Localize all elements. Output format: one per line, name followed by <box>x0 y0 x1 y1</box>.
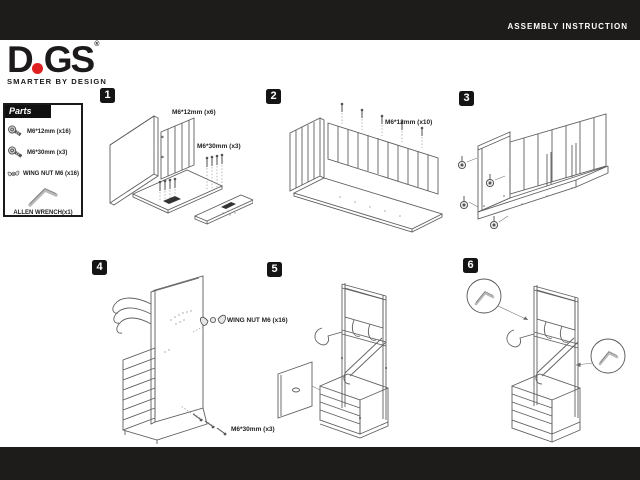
logo-letters-gs: GS <box>44 45 93 75</box>
step-1-diagram <box>103 95 253 245</box>
step-2-bolt-label: M6*12mm (x10) <box>385 119 432 126</box>
bolt-icon <box>7 145 24 160</box>
top-bar: ASSEMBLY INSTRUCTION <box>0 0 640 40</box>
part-row-wing-nut: WING NUT M6 (x16) <box>7 163 79 184</box>
step-3-number: 3 <box>459 91 474 106</box>
wing-nut-icon <box>7 167 20 180</box>
registered-mark: ® <box>94 41 99 48</box>
part-row-allen-wrench: ALLEN WRENCH(x1) <box>7 186 79 216</box>
part-row-m6-30: M6*30mm (x3) <box>7 142 79 163</box>
allen-wrench-icon <box>26 186 60 208</box>
step-4-diagram <box>95 268 265 446</box>
brand-logo: D GS ® SMARTER BY DESIGN <box>7 41 97 86</box>
logo-wordmark: D GS ® <box>7 41 97 75</box>
parts-list: Parts M6*12mm (x16) <box>3 103 83 217</box>
step-4-wing-nut-label: WING NUT M6 (x16) <box>227 317 288 324</box>
parts-items: M6*12mm (x16) M6*30mm (x3) <box>7 121 79 216</box>
step-6-diagram <box>452 266 632 446</box>
logo-red-dot-icon <box>32 63 43 74</box>
part-row-m6-12: M6*12mm (x16) <box>7 121 79 142</box>
parts-list-title: Parts <box>5 105 51 118</box>
logo-letter-d: D <box>7 45 32 75</box>
part-label: M6*12mm (x16) <box>27 129 71 135</box>
bottom-bar <box>0 447 640 480</box>
step-2-diagram <box>280 97 445 237</box>
instruction-sheet: ASSEMBLY INSTRUCTION D GS ® SMARTER BY D… <box>0 0 640 480</box>
bolt-icon <box>7 124 24 139</box>
step-4-long-bolt-label: M6*30mm (x3) <box>231 426 275 433</box>
step-5-diagram <box>270 268 440 446</box>
step-3-diagram <box>452 110 632 245</box>
step-1-bolt-label: M6*12mm (x6) <box>172 109 216 116</box>
part-label: M6*30mm (x3) <box>27 150 67 156</box>
part-label: WING NUT M6 (x16) <box>23 171 79 177</box>
logo-tagline: SMARTER BY DESIGN <box>7 77 97 86</box>
step-2-number: 2 <box>266 89 281 104</box>
page-title: ASSEMBLY INSTRUCTION <box>508 22 628 31</box>
step-1-long-bolt-label: M6*30mm (x3) <box>197 143 241 150</box>
part-label: ALLEN WRENCH(x1) <box>13 210 72 216</box>
